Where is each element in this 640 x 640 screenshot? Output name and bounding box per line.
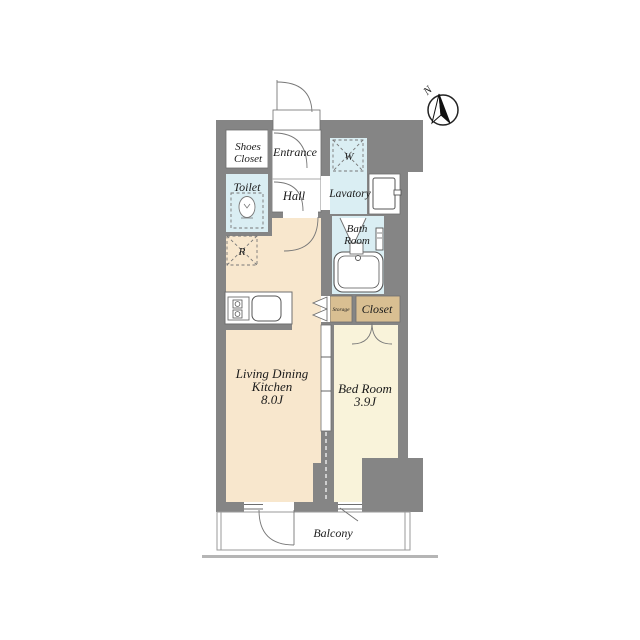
opening-bedroom-window bbox=[338, 502, 362, 512]
label-bed-room-line2: 3.9J bbox=[353, 394, 377, 409]
kitchen-sink bbox=[252, 296, 281, 321]
opening-entrance bbox=[273, 110, 320, 130]
toilet-fixture bbox=[239, 197, 255, 219]
entrance-door-arc bbox=[277, 82, 312, 112]
room-ldk bbox=[226, 218, 321, 502]
shower-panel bbox=[376, 228, 383, 250]
label-storage: Storage bbox=[332, 307, 350, 313]
ground-line bbox=[202, 555, 438, 558]
label-lavatory: Lavatory bbox=[328, 188, 371, 200]
wall-strip-toilet-bottom bbox=[216, 232, 268, 236]
label-balcony: Balcony bbox=[313, 526, 353, 540]
floor-plan-drawing: N Shoes Closet Entrance Toilet Hall Lava… bbox=[0, 0, 640, 640]
wall-top-right bbox=[408, 120, 423, 172]
compass: N bbox=[421, 83, 458, 125]
room-bedroom-lower bbox=[334, 458, 362, 502]
label-bath-room-line1: Bath bbox=[347, 223, 368, 235]
vanity-handle bbox=[394, 190, 401, 195]
label-shoes-closet-line2: Closet bbox=[234, 153, 263, 165]
label-toilet: Toilet bbox=[234, 180, 262, 194]
label-ldk-line3: 8.0J bbox=[261, 392, 284, 407]
label-bath-room-line2: Room bbox=[343, 235, 370, 247]
label-refrigerator: R bbox=[238, 246, 246, 258]
wall-stub-ldk-bottom bbox=[313, 463, 321, 502]
opening-hall-ldk bbox=[283, 211, 318, 218]
wall-pillar-bottom-right bbox=[365, 458, 423, 512]
room-lavatory bbox=[330, 138, 367, 214]
label-hall: Hall bbox=[282, 189, 306, 203]
wall-strip-left-core bbox=[268, 130, 272, 236]
toilet-bowl bbox=[239, 197, 255, 218]
label-washing-machine: W bbox=[344, 151, 354, 163]
wall-kitchen-bump bbox=[216, 324, 292, 330]
label-shoes-closet-line1: Shoes bbox=[235, 141, 261, 153]
floor-plan: N Shoes Closet Entrance Toilet Hall Lava… bbox=[0, 0, 640, 640]
opening-ldk-balcony bbox=[244, 502, 294, 512]
label-entrance: Entrance bbox=[272, 145, 318, 159]
kitchen bbox=[225, 292, 292, 324]
sliding-door bbox=[321, 325, 331, 431]
bathtub-faucet bbox=[356, 256, 361, 261]
label-closet: Closet bbox=[362, 302, 393, 316]
compass-north-label: N bbox=[421, 83, 436, 98]
vanity-unit bbox=[373, 178, 395, 209]
